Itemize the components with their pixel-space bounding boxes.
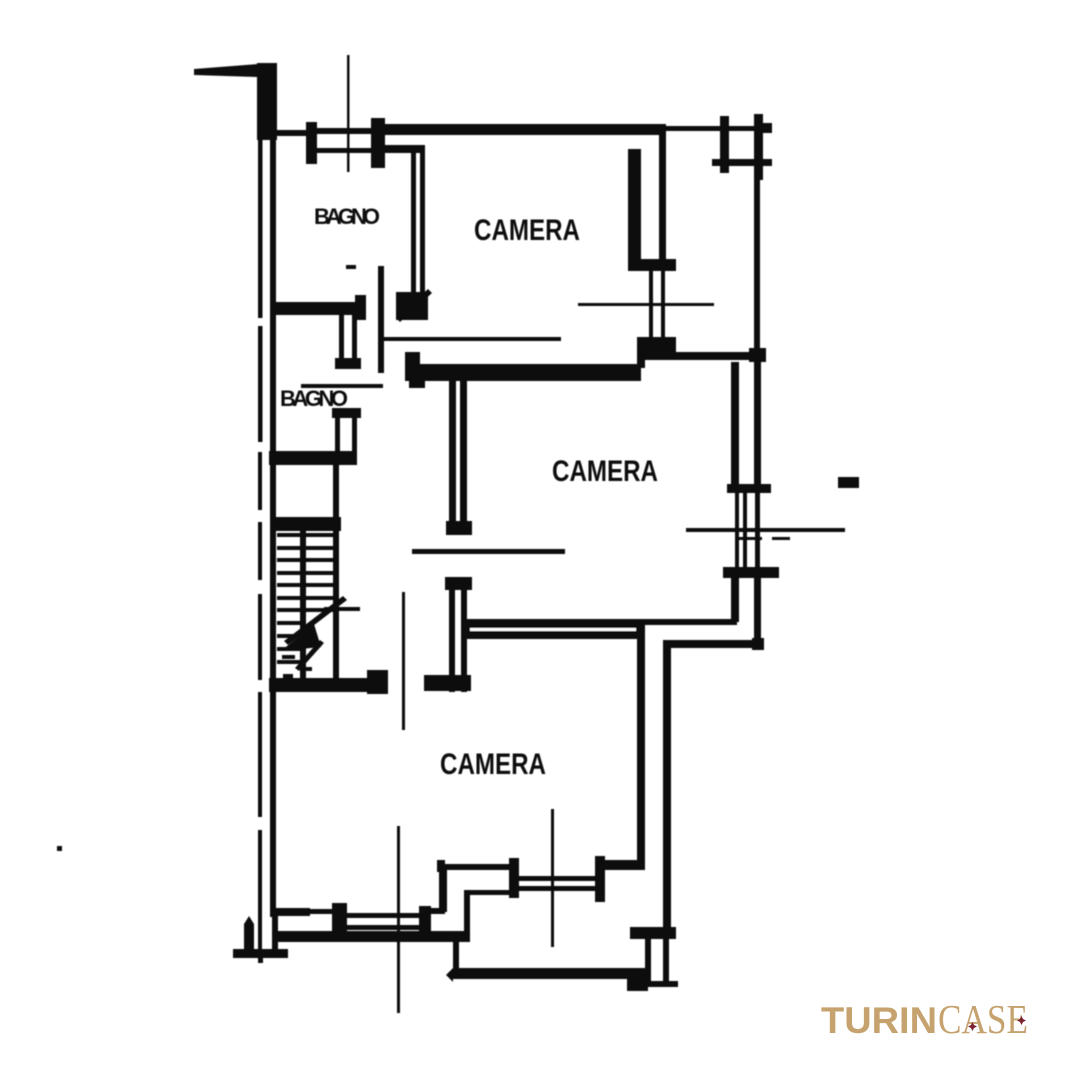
svg-text:CAMERA: CAMERA: [552, 455, 658, 488]
svg-text:CAMERA: CAMERA: [474, 214, 580, 247]
svg-text:TURIN: TURIN: [821, 1000, 937, 1041]
svg-text:CAMERA: CAMERA: [440, 748, 546, 781]
svg-text:BAGNO: BAGNO: [314, 204, 380, 229]
svg-text:BAGNO: BAGNO: [280, 386, 348, 411]
svg-text:CASE: CASE: [938, 996, 1028, 1042]
